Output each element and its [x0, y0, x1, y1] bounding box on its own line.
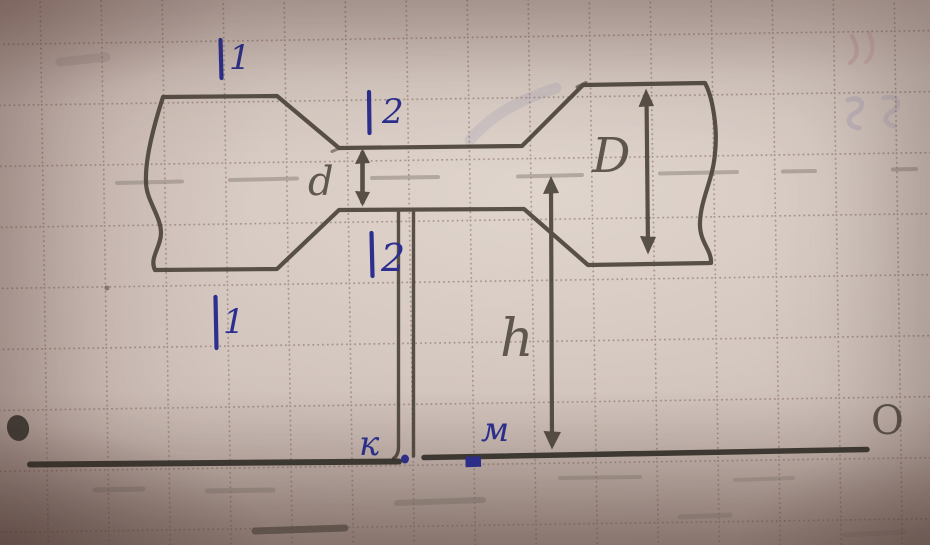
label-dim-d: d — [308, 159, 334, 205]
dim-arrow-h — [551, 182, 552, 444]
diagram-svg: d D h O 1 2 2 1 к м — [0, 0, 930, 545]
section-1-top-bar — [221, 40, 222, 78]
label-section-1-top: 1 — [229, 38, 251, 78]
ground-line-left — [30, 462, 399, 465]
section-2-top-bar — [369, 92, 370, 133]
label-point-k: к — [359, 424, 380, 464]
label-point-m: м — [481, 410, 509, 450]
label-axis-O-right: O — [871, 398, 904, 444]
label-section-1-bottom: 1 — [223, 302, 245, 342]
label-dim-D: D — [591, 128, 630, 184]
section-1-bottom-bar — [216, 297, 217, 348]
point-m-square — [465, 456, 481, 467]
label-dim-h: h — [500, 309, 534, 369]
label-section-2-top: 2 — [381, 92, 404, 132]
section-2-bottom-bar — [372, 233, 373, 276]
label-section-2-bottom: 2 — [380, 236, 405, 280]
point-k-dot — [401, 455, 409, 464]
dim-arrow-D — [647, 95, 649, 249]
notebook-photo: d D h O 1 2 2 1 к м — [0, 0, 930, 545]
